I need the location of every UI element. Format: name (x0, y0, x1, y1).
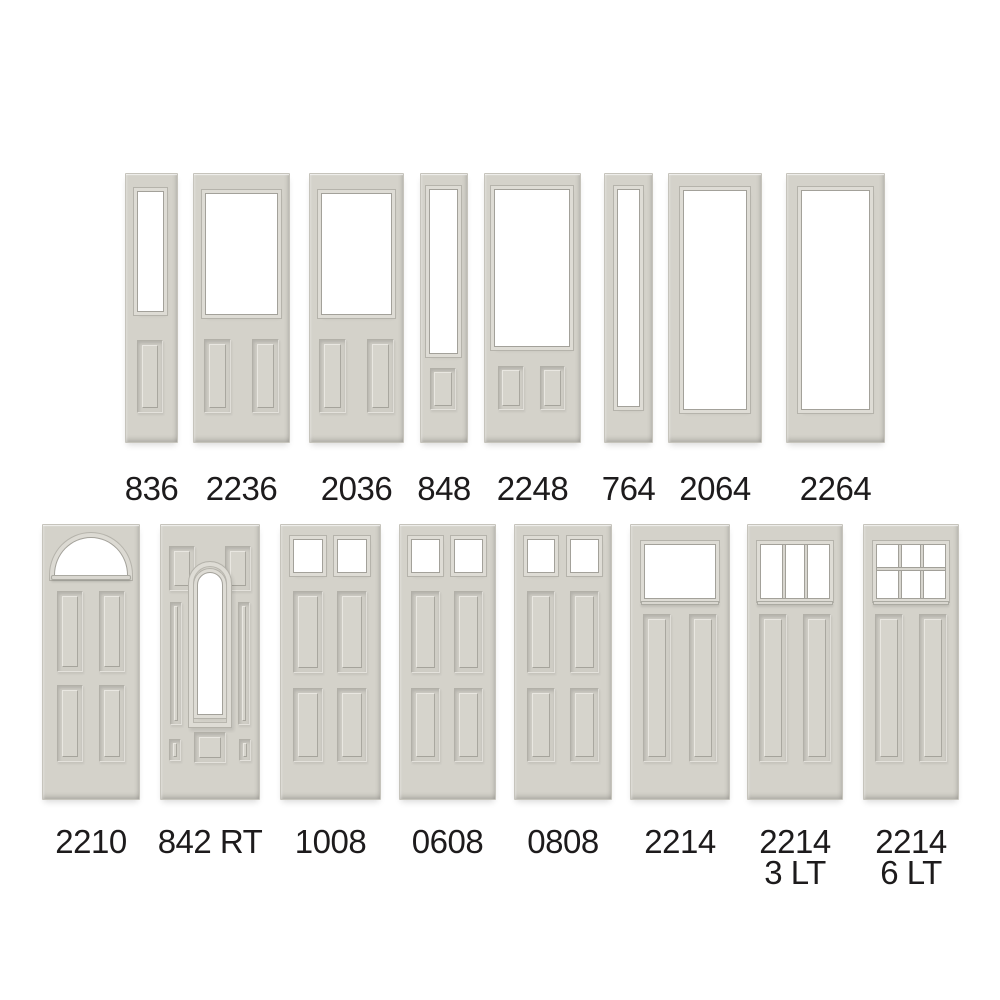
door-764: 764 (604, 173, 653, 443)
door-model-label: 2210 (55, 826, 126, 857)
glass-lite (411, 539, 440, 573)
recessed-panel (169, 739, 181, 761)
door-2036-illustration (309, 173, 404, 443)
glass-lite (801, 190, 871, 410)
muntin-vertical (898, 545, 902, 598)
recessed-panel (689, 614, 717, 762)
recessed-panel (527, 688, 556, 762)
recessed-panel (99, 685, 124, 762)
muntin-vertical (804, 545, 808, 598)
recessed-panel (137, 340, 164, 412)
door-2214: 2214 (630, 524, 730, 800)
door-2214-illustration (630, 524, 730, 800)
recessed-panel (411, 688, 440, 762)
three-lite-glass (760, 544, 830, 599)
glass-lite (617, 189, 640, 407)
recessed-panel (759, 614, 786, 762)
fan-lite-base (51, 575, 132, 580)
recessed-panel (194, 732, 225, 764)
glass-lite (683, 190, 747, 410)
recessed-panel (337, 688, 367, 762)
glass-lite (429, 189, 458, 354)
glass-lite (494, 189, 571, 347)
lite-sill (873, 601, 948, 605)
recessed-panel (238, 602, 250, 725)
muntin-vertical (782, 545, 786, 598)
door-2214-3lt-illustration (747, 524, 843, 800)
door-848-illustration (420, 173, 468, 443)
recessed-panel (570, 591, 599, 673)
recessed-panel (99, 591, 124, 672)
recessed-panel (875, 614, 902, 762)
glass-lite (644, 544, 717, 599)
glass-lite (293, 539, 323, 573)
door-764-illustration (604, 173, 653, 443)
door-2064: 2064 (668, 173, 762, 443)
muntin-horizontal (877, 567, 945, 571)
muntin-vertical (920, 545, 924, 598)
recessed-panel (337, 591, 367, 673)
door-2264: 2264 (786, 173, 885, 443)
glass-lite (205, 193, 278, 315)
recessed-panel (293, 591, 323, 673)
door-2214-6lt: 22146 LT (863, 524, 959, 800)
six-lite-glass (876, 544, 946, 599)
door-model-label: 22146 LT (875, 826, 946, 888)
door-2036: 2036 (309, 173, 404, 443)
recessed-panel (57, 685, 82, 762)
glass-lite (527, 539, 556, 573)
door-model-label: 22143 LT (759, 826, 830, 888)
lite-sill (757, 601, 832, 605)
door-2210-illustration (42, 524, 140, 800)
recessed-panel (57, 591, 82, 672)
door-model-label: 2264 (800, 473, 871, 504)
recessed-panel (454, 688, 483, 762)
fan-lite (54, 537, 129, 575)
door-model-label: 2248 (497, 473, 568, 504)
glass-lite (321, 193, 393, 315)
door-2210: 2210 (42, 524, 140, 800)
door-1008: 1008 (280, 524, 381, 800)
door-1008-illustration (280, 524, 381, 800)
recessed-panel (919, 614, 946, 762)
recessed-panel (204, 339, 231, 413)
door-2236-illustration (193, 173, 290, 443)
recessed-panel (498, 366, 524, 410)
door-model-label: 836 (125, 473, 179, 504)
glass-lite (137, 191, 164, 312)
glass-lite (337, 539, 367, 573)
door-0808-illustration (514, 524, 612, 800)
recessed-panel (643, 614, 671, 762)
door-model-label: 2236 (206, 473, 277, 504)
door-842-rt: 842 RT (160, 524, 260, 800)
door-2264-illustration (786, 173, 885, 443)
door-2236: 2236 (193, 173, 290, 443)
arch-glass-lite (197, 572, 222, 716)
door-model-label: 842 RT (158, 826, 263, 857)
recessed-panel (367, 339, 394, 413)
door-2214-6lt-illustration (863, 524, 959, 800)
door-0608-illustration (399, 524, 496, 800)
door-model-label: 2214 (644, 826, 715, 857)
recessed-panel (411, 591, 440, 673)
door-848: 848 (420, 173, 468, 443)
door-0808: 0808 (514, 524, 612, 800)
recessed-panel (570, 688, 599, 762)
recessed-panel (540, 366, 566, 410)
door-836: 836 (125, 173, 178, 443)
lite-sill (641, 601, 719, 605)
recessed-panel (527, 591, 556, 673)
recessed-panel (319, 339, 346, 413)
recessed-panel (170, 602, 182, 725)
door-model-label: 2064 (679, 473, 750, 504)
door-2064-illustration (668, 173, 762, 443)
recessed-panel (239, 739, 251, 761)
door-model-label: 764 (602, 473, 656, 504)
door-style-chart: 836 2236 2036 848 2248 (0, 0, 1000, 1000)
door-model-label: 1008 (295, 826, 366, 857)
door-model-label: 2036 (321, 473, 392, 504)
door-model-label: 848 (417, 473, 471, 504)
recessed-panel (454, 591, 483, 673)
recessed-panel (803, 614, 830, 762)
door-2248: 2248 (484, 173, 581, 443)
recessed-panel (252, 339, 279, 413)
recessed-panel (430, 368, 457, 410)
door-842-rt-illustration (160, 524, 260, 800)
door-2248-illustration (484, 173, 581, 443)
door-model-label: 0808 (527, 826, 598, 857)
glass-lite (570, 539, 599, 573)
recessed-panel (293, 688, 323, 762)
door-836-illustration (125, 173, 178, 443)
door-2214-3lt: 22143 LT (747, 524, 843, 800)
glass-lite (454, 539, 483, 573)
door-model-label: 0608 (412, 826, 483, 857)
door-0608: 0608 (399, 524, 496, 800)
